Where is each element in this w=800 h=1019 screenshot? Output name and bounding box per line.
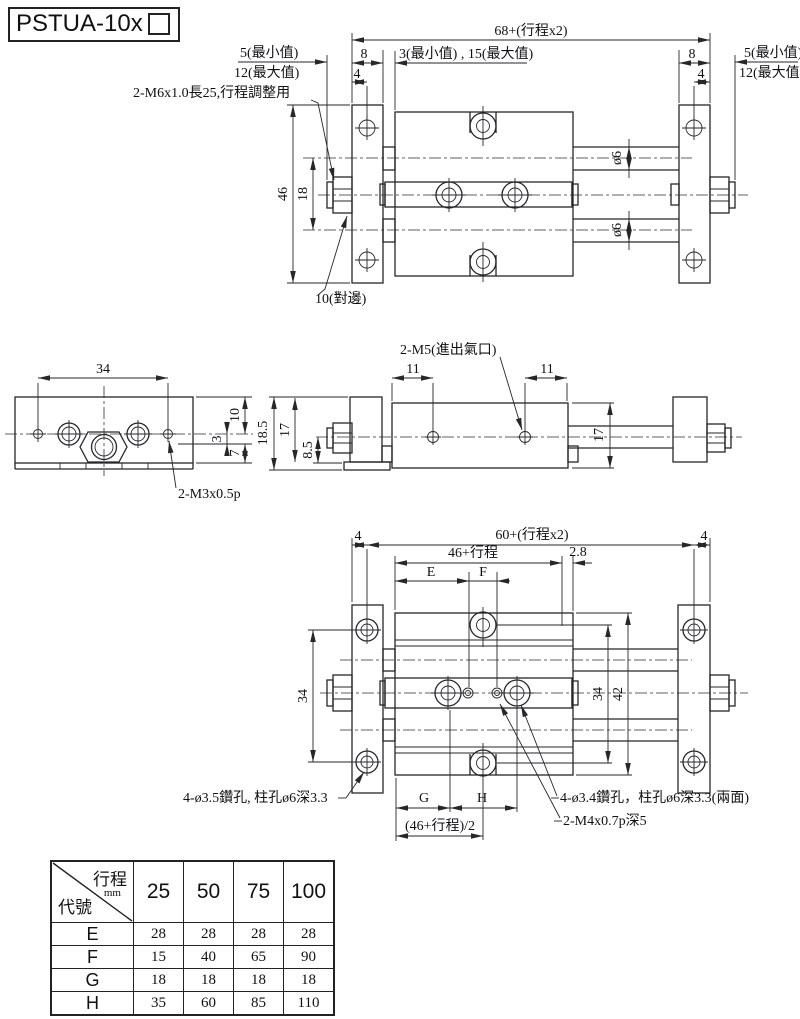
side-view: 2-M5(進出氣口) 11 11 18.5 17 8.5 17	[256, 342, 742, 470]
table-row: G 18 18 18 18	[51, 969, 334, 992]
left-end-plate	[352, 105, 383, 283]
label-m3-thread: 2-M3x0.5p	[178, 487, 241, 502]
dim-H: H	[477, 791, 487, 806]
label-counterbore-plates: 4-ø3.5鑽孔, 柱孔ø6深3.3	[183, 790, 328, 806]
table-row: E 28 28 28 28	[51, 923, 334, 946]
dim-rod-protrusion-max-right: 12(最大值)	[739, 65, 800, 81]
dim-hole-offset-right: 4	[698, 67, 705, 82]
dim-body-plus-stroke: 46+行程	[448, 545, 498, 561]
row-code: H	[51, 992, 134, 1016]
dim-rod-diameter-bottom: ø6	[610, 223, 625, 237]
label-stroke-adjuster: 2-M6x1.0長25,行程調整用	[133, 85, 290, 101]
dim-port-offset-right: 11	[540, 362, 553, 377]
dim-rod-diameter-top: ø6	[610, 151, 625, 165]
cell-value: 28	[134, 923, 184, 946]
cell-value: 110	[284, 992, 335, 1016]
stroke-dimension-table: 行程 mm 代號 25 50 75 100 E 28 28 28 28 F 15…	[50, 860, 335, 1016]
dim-gap-min-max: 3(最小值) , 15(最大值)	[399, 46, 533, 62]
row-code: F	[51, 946, 134, 969]
cell-value: 15	[134, 946, 184, 969]
top-view: 68+(行程x2) 8 3(最小值) , 15(最大值) 4 5(最小值) 12…	[133, 23, 800, 307]
dim-mount-span: 60+(行程x2)	[495, 527, 569, 543]
label-air-port: 2-M5(進出氣口)	[400, 342, 497, 358]
dim-rod-protrusion-max-left: 12(最大值)	[234, 65, 300, 81]
cell-value: 65	[234, 946, 284, 969]
dim-plate-thickness-left: 8	[361, 47, 368, 62]
bottom-view: 4 60+(行程x2) 4 46+行程 2.8 E F 34	[183, 527, 749, 841]
dim-top-to-axis: 10	[228, 408, 243, 422]
dim-edge-offset: 2.8	[569, 545, 587, 560]
cell-value: 18	[134, 969, 184, 992]
cell-value: 28	[284, 923, 335, 946]
column-header: 25	[134, 861, 184, 923]
dim-plate-hole-span: 34	[296, 689, 311, 703]
end-view: 34 10 3 7 2-M3x0.5p	[5, 362, 253, 502]
dim-plate-thickness-right: 8	[689, 47, 696, 62]
corner-label-code: 代號	[58, 893, 92, 918]
dim-total-height: 18.5	[256, 421, 271, 446]
row-code: G	[51, 969, 134, 992]
dim-rod-protrusion-min-right: 5(最小值)	[744, 45, 800, 61]
cell-value: 18	[284, 969, 335, 992]
column-header: 50	[184, 861, 234, 923]
table-row: F 15 40 65 90	[51, 946, 334, 969]
row-code: E	[51, 923, 134, 946]
cell-value: 40	[184, 946, 234, 969]
column-header: 100	[284, 861, 335, 923]
label-counterbore-table: 4-ø3.4鑽孔，柱孔ø6深3.3(兩面)	[560, 790, 749, 806]
dim-hole-offset-left: 4	[354, 67, 361, 82]
cell-value: 18	[184, 969, 234, 992]
side-right-plate	[673, 397, 707, 462]
table-corner-cell: 行程 mm 代號	[51, 861, 134, 923]
cell-value: 18	[234, 969, 284, 992]
dim-half-span: (46+行程)/2	[405, 818, 475, 834]
dim-plate-height: 46	[276, 187, 291, 201]
dim-hole-span: 34	[96, 362, 110, 377]
dim-F: F	[479, 565, 487, 580]
cylinder-body-bottom	[395, 613, 573, 775]
dim-hole-offset-right-bottom: 4	[701, 529, 708, 544]
piston-plate	[385, 182, 572, 207]
dim-rod-protrusion-min-left: 5(最小值)	[240, 45, 299, 61]
cell-value: 35	[134, 992, 184, 1016]
column-header: 75	[234, 861, 284, 923]
dim-body-height: 17	[592, 428, 607, 442]
corner-label-unit: mm	[104, 887, 121, 899]
side-body	[392, 403, 568, 468]
side-left-plate	[350, 397, 382, 462]
dim-hole-offset-left-bottom: 4	[355, 529, 362, 544]
dim-E: E	[427, 565, 436, 580]
table-header-row: 行程 mm 代號 25 50 75 100	[51, 861, 334, 923]
table-row: H 35 60 85 110	[51, 992, 334, 1016]
dim-lug-span: 34	[591, 687, 606, 701]
cell-value: 85	[234, 992, 284, 1016]
dim-overall-length: 68+(行程x2)	[494, 23, 568, 39]
dim-port-offset-left: 11	[406, 362, 419, 377]
dim-bottom-offset: 7	[228, 450, 243, 457]
cell-value: 28	[234, 923, 284, 946]
dim-rod-spacing: 18	[296, 187, 311, 201]
hex-nut	[80, 432, 127, 462]
dim-plate-height-side: 17	[278, 423, 293, 437]
dim-axis-offset: 3	[210, 436, 225, 443]
cell-value: 60	[184, 992, 234, 1016]
label-wrench-flats: 10(對邊)	[315, 291, 367, 307]
cell-value: 28	[184, 923, 234, 946]
cylinder-body	[395, 112, 573, 276]
dim-body-width: 42	[611, 687, 626, 701]
right-end-plate	[679, 105, 710, 283]
dim-axis-height: 8.5	[301, 441, 316, 459]
cell-value: 90	[284, 946, 335, 969]
drawing-canvas: PSTUA-10x	[0, 0, 800, 1019]
dim-G: G	[419, 791, 429, 806]
label-tapped-holes: 2-M4x0.7p深5	[563, 813, 647, 829]
